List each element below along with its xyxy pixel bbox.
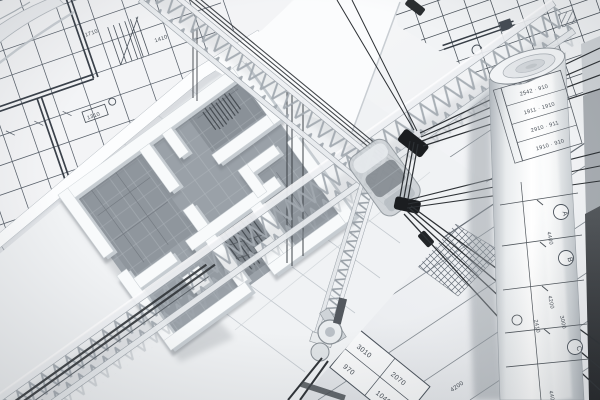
vignette-overlay [0, 0, 600, 400]
blueprint-scene: 3 4 5 3010 2070 970 1040 4200 3999 D C B [0, 0, 600, 400]
